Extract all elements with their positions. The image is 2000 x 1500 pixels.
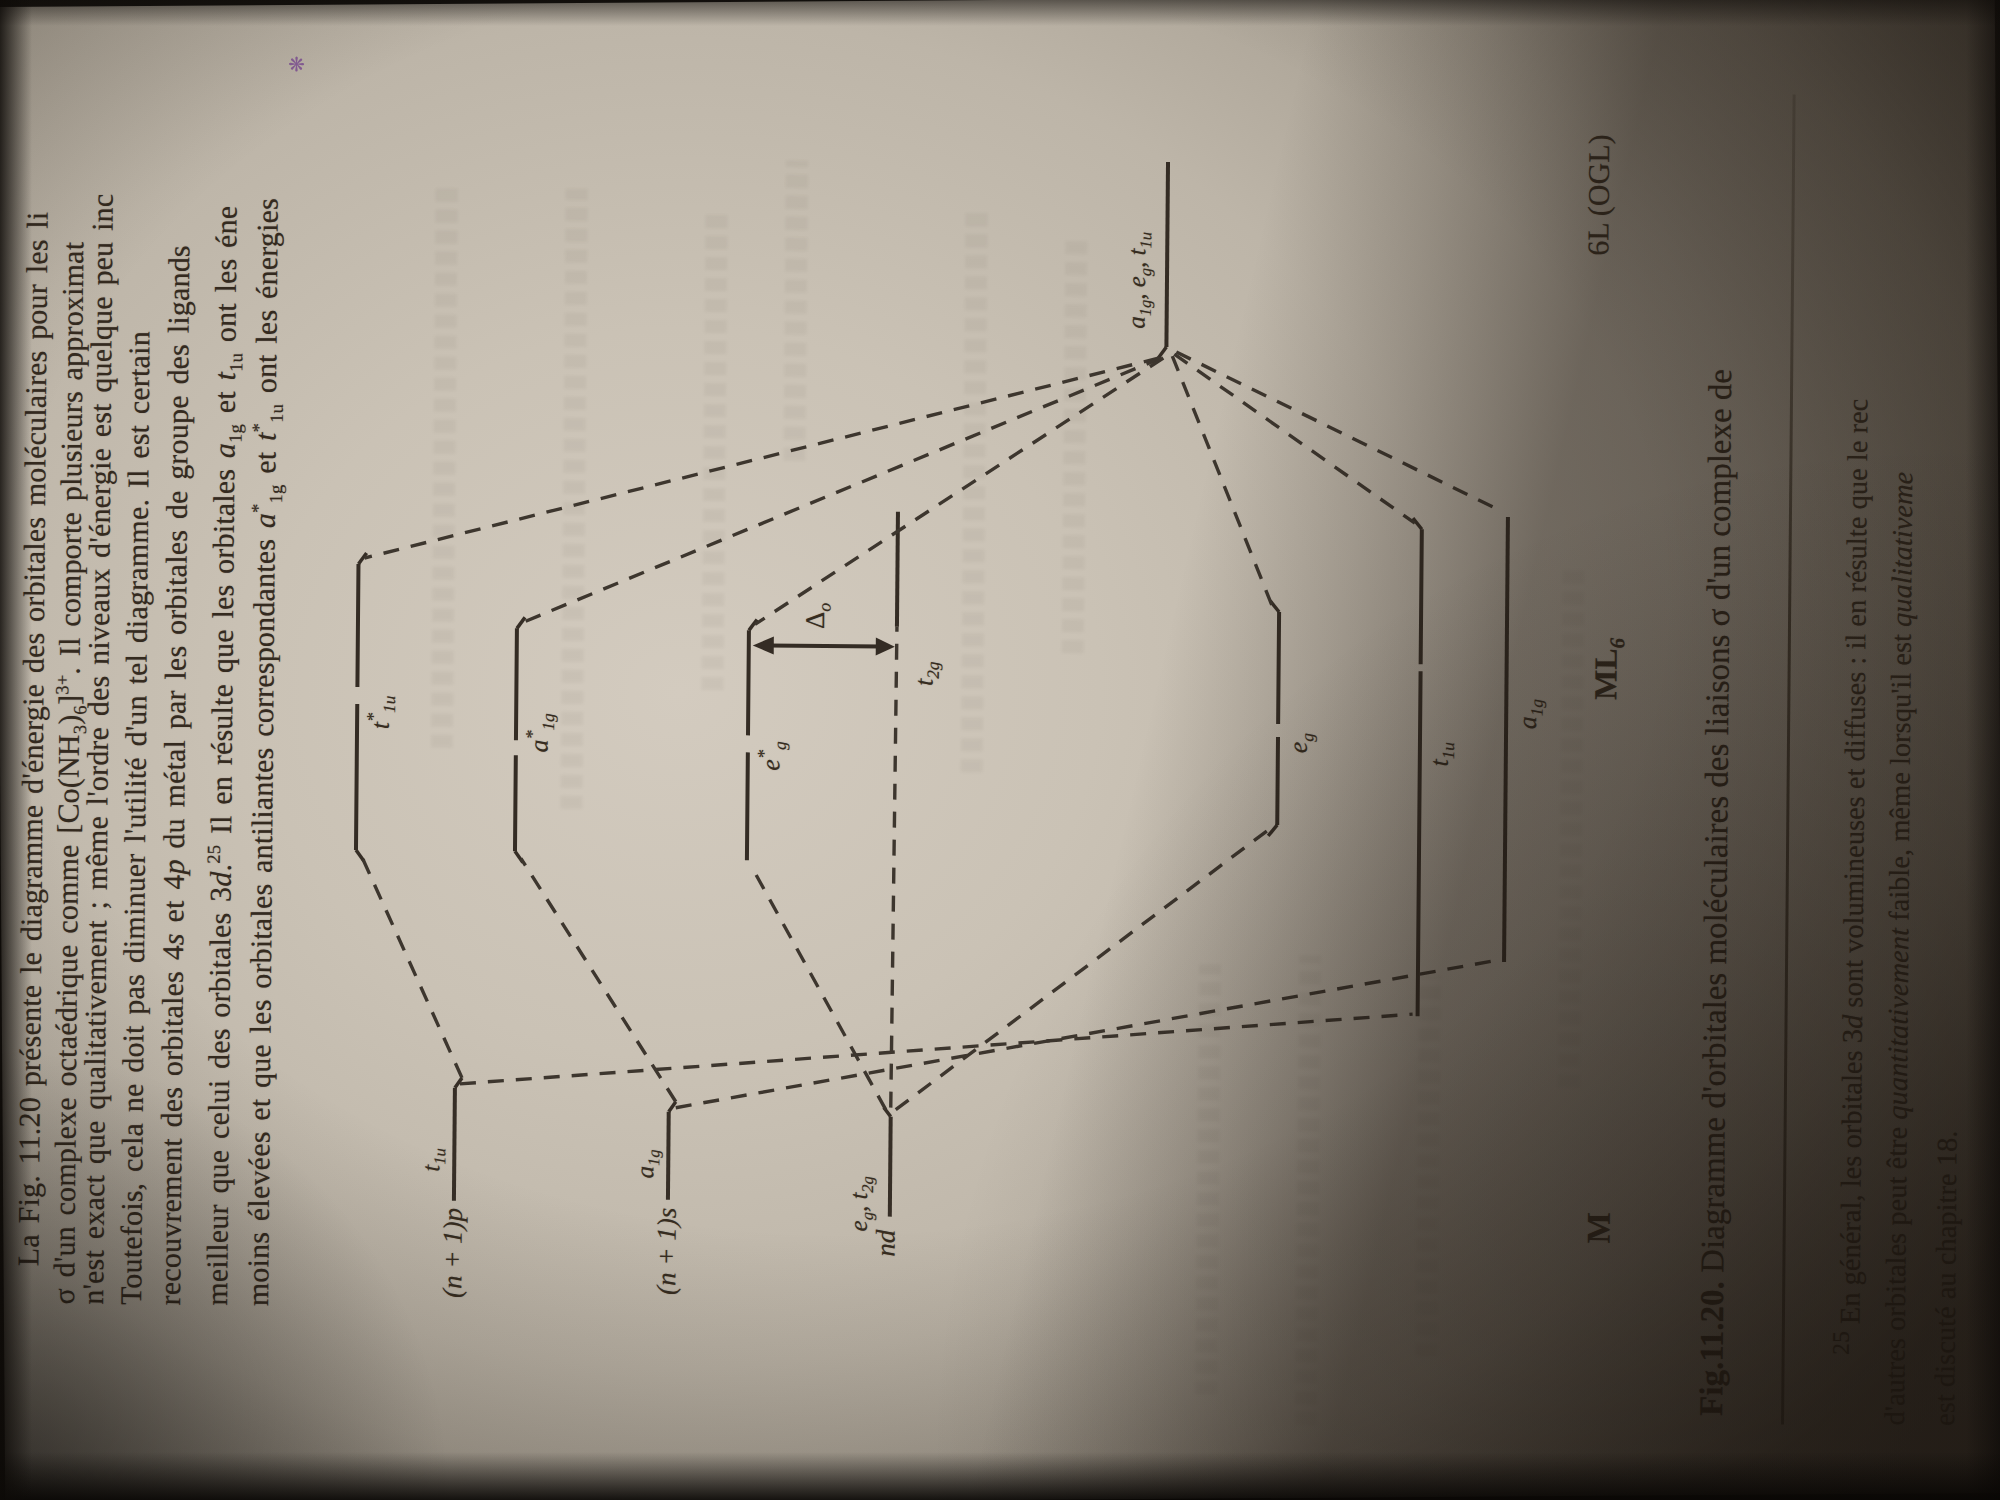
metal-s-label: (n + 1)s — [651, 1208, 683, 1348]
mo-level-lines — [355, 507, 1508, 1017]
book-page-photo: La Fig. 11.20 présente le diagramme d'én… — [0, 0, 2000, 1500]
mo-t1u-label: t1u — [1425, 742, 1459, 767]
mo-t2g-label: t2g — [909, 661, 943, 686]
footnote-line: est discuté au chapitre 18. — [1929, 1131, 1964, 1426]
metal-column-title: M — [1580, 1193, 1618, 1263]
mo-t1u-star-label: t*1u — [363, 696, 400, 730]
complex-column-title: ML6 — [1587, 638, 1630, 700]
delta-o-arrow — [753, 636, 895, 655]
mo-eg-star-label: e*g — [754, 741, 791, 771]
figure-caption-text: Diagramme d'orbitales moléculaires des l… — [1694, 369, 1738, 1281]
ligand-column-title: 6L (OGL) — [1581, 134, 1616, 256]
ligand-group-orbitals-label: a1g, eg, t1u — [1123, 232, 1157, 329]
metal-d-symmetry-label: eg, t2g — [845, 1176, 878, 1232]
metal-p-label: (n + 1)p — [437, 1208, 469, 1350]
mo-a1g-label: a1g — [1513, 699, 1547, 729]
page-content: La Fig. 11.20 présente le diagramme d'én… — [0, 4, 2000, 1500]
ligand-level-line — [1166, 162, 1168, 347]
metal-p-symmetry-label: t1u — [417, 1148, 450, 1172]
delta-o-label: Δo — [800, 603, 836, 630]
page: La Fig. 11.20 présente le diagramme d'én… — [0, 0, 2000, 1500]
margin-mark: ❋ — [285, 56, 309, 73]
metal-s-symmetry-label: a1g — [631, 1149, 664, 1178]
mo-eg-label: eg — [1284, 733, 1318, 753]
metal-d-label: nd — [870, 1229, 902, 1309]
mo-a1g-star-label: a*1g — [522, 713, 559, 753]
figure-caption-number: Fig.11.20. — [1693, 1281, 1730, 1416]
